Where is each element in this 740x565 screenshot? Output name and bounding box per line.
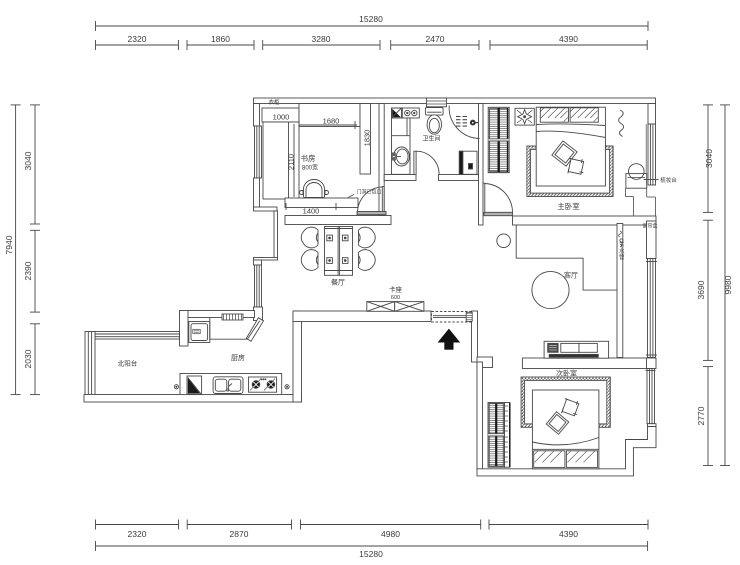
svg-text:厨房: 厨房 <box>231 353 245 362</box>
svg-text:客厅: 客厅 <box>564 271 578 280</box>
svg-text:3280: 3280 <box>312 34 331 44</box>
svg-text:1400: 1400 <box>303 207 320 216</box>
svg-text:600: 600 <box>391 295 400 301</box>
svg-text:4980: 4980 <box>381 529 400 539</box>
svg-text:餐厅: 餐厅 <box>331 278 345 287</box>
svg-text:书房: 书房 <box>301 153 316 163</box>
svg-text:管: 管 <box>619 253 625 261</box>
svg-text:2110: 2110 <box>287 154 296 170</box>
svg-text:2870: 2870 <box>230 529 249 539</box>
svg-text:窗帘盒: 窗帘盒 <box>642 223 657 230</box>
svg-text:卫生间: 卫生间 <box>422 135 440 143</box>
svg-text:2320: 2320 <box>128 34 147 44</box>
svg-text:2320: 2320 <box>128 529 147 539</box>
svg-text:2770: 2770 <box>696 406 706 425</box>
svg-text:北阳台: 北阳台 <box>118 359 138 368</box>
svg-text:1830: 1830 <box>363 130 372 147</box>
svg-text:15280: 15280 <box>359 549 383 559</box>
svg-text:15280: 15280 <box>359 14 383 24</box>
svg-text:门洞已包口: 门洞已包口 <box>356 189 381 196</box>
svg-text:3690: 3690 <box>696 280 706 299</box>
svg-text:1860: 1860 <box>211 34 230 44</box>
svg-text:1680: 1680 <box>323 117 340 126</box>
svg-text:水: 水 <box>619 247 625 255</box>
svg-text:主卧室: 主卧室 <box>557 201 580 211</box>
svg-text:3040: 3040 <box>704 149 714 168</box>
svg-text:2470: 2470 <box>426 34 445 44</box>
svg-text:衣柜: 衣柜 <box>268 98 280 106</box>
svg-text:9980: 9980 <box>723 275 733 294</box>
svg-text:7940: 7940 <box>4 235 14 254</box>
svg-text:梳妆台: 梳妆台 <box>660 176 677 184</box>
svg-text:次卧室: 次卧室 <box>556 369 577 378</box>
svg-text:卡座: 卡座 <box>389 285 403 294</box>
svg-text:2030: 2030 <box>23 349 33 368</box>
svg-text:2390: 2390 <box>23 261 33 280</box>
svg-text:800宽: 800宽 <box>302 164 318 172</box>
svg-text:下: 下 <box>619 242 625 249</box>
svg-text:3040: 3040 <box>23 151 33 170</box>
svg-text:4390: 4390 <box>559 34 578 44</box>
svg-text:4390: 4390 <box>559 529 578 539</box>
svg-text:1000: 1000 <box>273 113 290 122</box>
